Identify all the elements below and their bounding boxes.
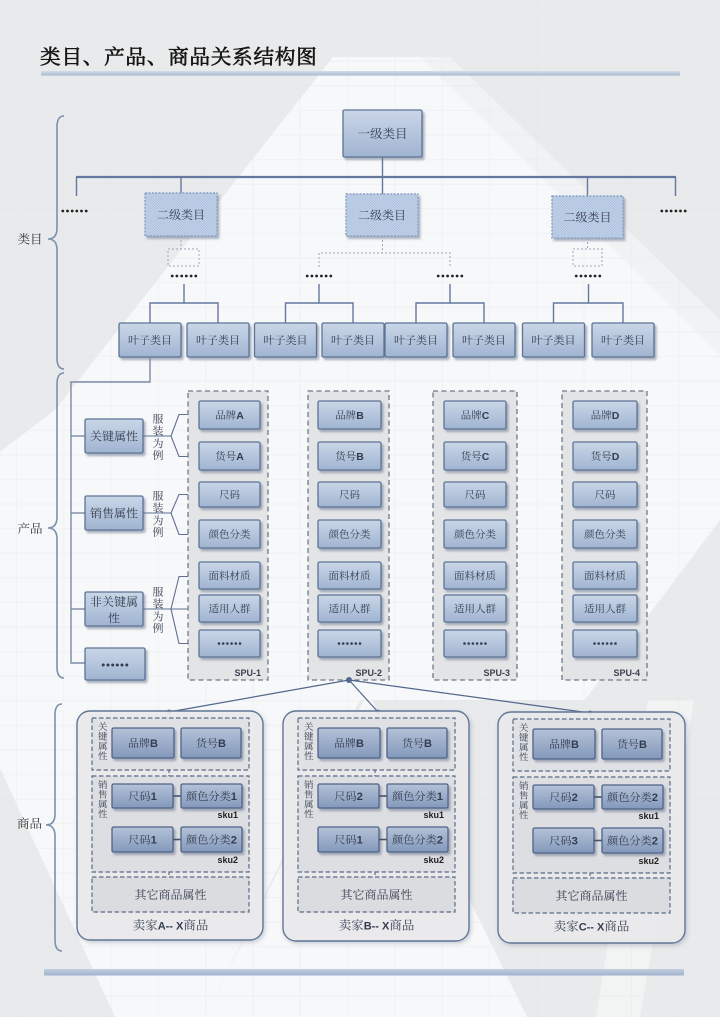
svg-text:B: B: [356, 738, 364, 750]
svg-text:B: B: [218, 738, 226, 750]
svg-text:C: C: [482, 410, 490, 422]
svg-text:B: B: [639, 739, 647, 751]
svg-text:B: B: [571, 739, 579, 751]
svg-text:2: 2: [357, 791, 363, 803]
svg-text:sku2: sku2: [217, 855, 238, 865]
svg-text:sku1: sku1: [638, 811, 659, 821]
svg-text:A-- X: A-- X: [158, 921, 184, 933]
svg-text:2: 2: [572, 792, 578, 804]
svg-text:2: 2: [652, 836, 658, 848]
svg-text:sku2: sku2: [638, 856, 659, 866]
svg-text:B: B: [150, 738, 158, 750]
svg-text:2: 2: [437, 835, 443, 847]
svg-text:A: A: [236, 451, 244, 463]
svg-text:C-- X: C-- X: [579, 922, 605, 934]
svg-text:1: 1: [437, 791, 443, 803]
svg-text:SPU-3: SPU-3: [483, 668, 510, 678]
svg-text:2: 2: [652, 792, 658, 804]
svg-text:1: 1: [357, 835, 363, 847]
svg-text:D: D: [612, 451, 620, 463]
svg-text:D: D: [612, 410, 620, 422]
svg-text:sku1: sku1: [423, 810, 444, 820]
svg-text:1: 1: [151, 791, 157, 803]
svg-text:1: 1: [151, 835, 157, 847]
svg-text:1: 1: [231, 791, 237, 803]
svg-text:sku1: sku1: [217, 810, 238, 820]
svg-text:B: B: [356, 410, 364, 422]
svg-text:sku2: sku2: [423, 855, 444, 865]
svg-text:SPU-2: SPU-2: [355, 668, 382, 678]
svg-text:B: B: [356, 451, 364, 463]
svg-text:B-- X: B-- X: [364, 921, 390, 933]
svg-text:2: 2: [231, 835, 237, 847]
svg-text:SPU-4: SPU-4: [613, 668, 640, 678]
svg-text:3: 3: [572, 836, 578, 848]
svg-text:B: B: [424, 738, 432, 750]
svg-text:A: A: [236, 410, 244, 422]
svg-text:C: C: [482, 451, 490, 463]
svg-text:SPU-1: SPU-1: [234, 668, 261, 678]
